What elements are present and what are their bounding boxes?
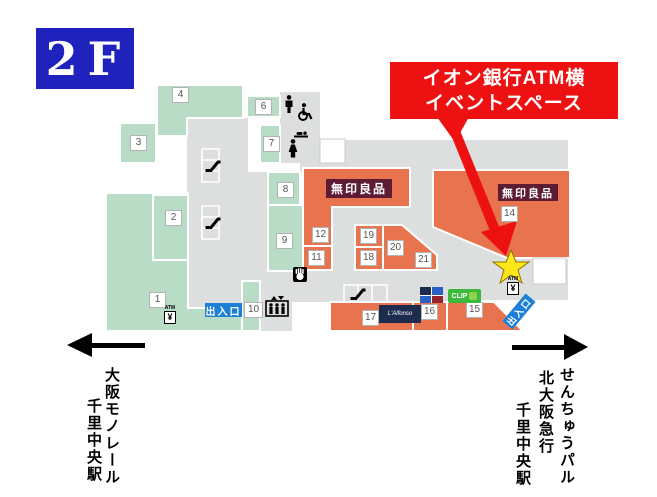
unit-box-7: 7 [263,136,280,152]
escalator-icon [204,157,221,179]
direction-left-line2: 千里中央駅 [83,398,104,483]
unit15-clip-logo: CLIP [448,289,481,303]
clip-logo-text: CLIP [452,293,468,300]
entrance-label-west: 出入口 [205,303,242,317]
service-hand-icon [293,267,307,287]
direction-left-line1: 大阪モノレール [101,367,122,486]
stairwell-right [533,258,566,284]
unit-box-16: 16 [421,304,438,320]
floor-map-page: 2F イオン銀行ATM横 イベントスペース 無印良品 無印良品 出入口 出入口 … [0,0,657,497]
muji-label-right: 無印良品 [498,184,558,201]
unit-box-15: 15 [466,302,483,318]
unit-box-6: 6 [255,99,272,115]
escalator-icon [204,214,221,236]
callout-line1: イオン銀行ATM横 [423,66,586,91]
unit-box-14: 14 [501,206,518,222]
wheelchair-icon [296,103,313,126]
muji-label-left: 無印良品 [326,179,392,198]
left-arrow-head [67,333,92,357]
unit-box-12: 12 [312,227,329,243]
unit-box-18: 18 [360,250,377,266]
unit-box-11: 11 [308,250,325,266]
unit17-brand-logo: L'Alfonso [379,305,421,323]
direction-right-line3: 千里中央駅 [512,402,533,487]
event-callout: イオン銀行ATM横 イベントスペース [390,62,618,119]
atm-icon-east: ATM ¥ [507,277,519,295]
unit-box-2: 2 [165,210,182,226]
right-arrow-head [564,334,588,360]
callout-line2: イベントスペース [425,91,583,116]
left-arrow-shaft [88,343,145,348]
unit-box-20: 20 [387,240,404,256]
right-arrow-shaft [512,345,567,350]
yen-icon: ¥ [507,282,519,295]
men-restroom-icon [284,95,294,118]
unit-box-9: 9 [276,233,293,249]
direction-arrows [67,333,588,360]
atm-icon-west: ATM ¥ [164,306,176,324]
direction-right-line2: 北大阪急行 [535,370,556,455]
clip-logo-mark [469,292,477,300]
direction-right-line1: せんちゅうパル [556,367,577,486]
unit-box-19: 19 [360,228,377,244]
elevator-icon [265,296,289,322]
floor-label: 2F [36,28,134,89]
unit-box-3: 3 [130,135,147,151]
yen-icon: ¥ [164,311,176,324]
unit-box-17: 17 [362,310,379,326]
unit-box-21: 21 [415,252,432,268]
unit-box-10: 10 [244,302,263,318]
women-restroom-icon [287,139,299,163]
unit-box-4: 4 [172,87,189,103]
unit16-grid-logo-icon [420,287,443,303]
unit-box-8: 8 [277,182,294,198]
stairwell-top [320,139,345,163]
escalator-icon [349,285,366,307]
corridor-main [187,118,248,308]
